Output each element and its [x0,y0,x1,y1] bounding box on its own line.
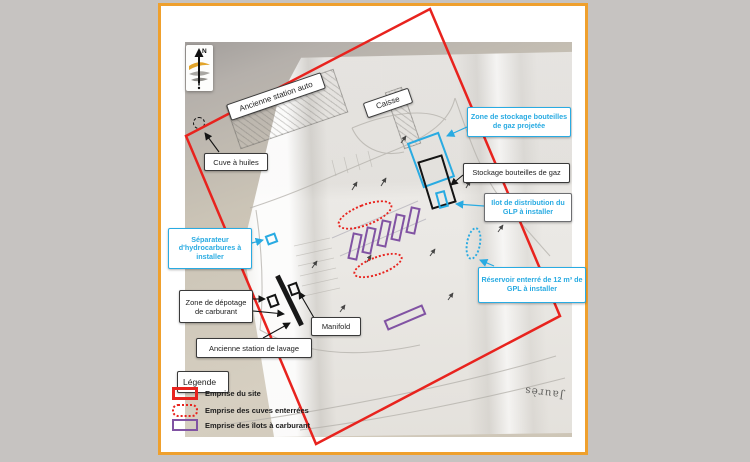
legend-item: Emprise des îlots à carburant [172,418,310,432]
label-ilot-glp: Ilot de distribution du GLP à installer [484,193,572,222]
label-stockage-gaz: Stockage bouteilles de gaz [463,163,570,183]
label-station-lavage: Ancienne station de lavage [196,338,312,358]
label-zone-depotage: Zone de dépotage de carburant [179,290,253,323]
label-zone-stockage-gaz: Zone de stockage bouteilles de gaz proje… [467,107,571,137]
screenshot-canvas: Ancienne station auto Caisse Cuve à huil… [0,0,750,462]
legend-item-label: Emprise des cuves enterrées [205,406,309,415]
legend-item: Emprise des cuves enterrées [172,403,309,417]
label-separateur: Séparateur d'hydrocarbures à installer [168,228,252,269]
legend-item-label: Emprise des îlots à carburant [205,421,310,430]
compass-needle-icon [186,45,213,91]
legend-swatch-cuves [172,404,198,417]
label-reservoir-gpl: Réservoir enterré de 12 m³ de GPL à inst… [478,267,586,303]
oil-tank-marker [193,117,205,129]
north-compass: N [186,45,213,91]
legend-item-label: Emprise du site [205,389,261,398]
legend-swatch-site [172,387,198,400]
label-cuve-a-huiles: Cuve à huiles [204,153,268,171]
compass-north-label: N [202,48,207,55]
label-manifold: Manifold [311,317,361,336]
legend-swatch-ilots [172,419,198,431]
legend-item: Emprise du site [172,386,261,400]
